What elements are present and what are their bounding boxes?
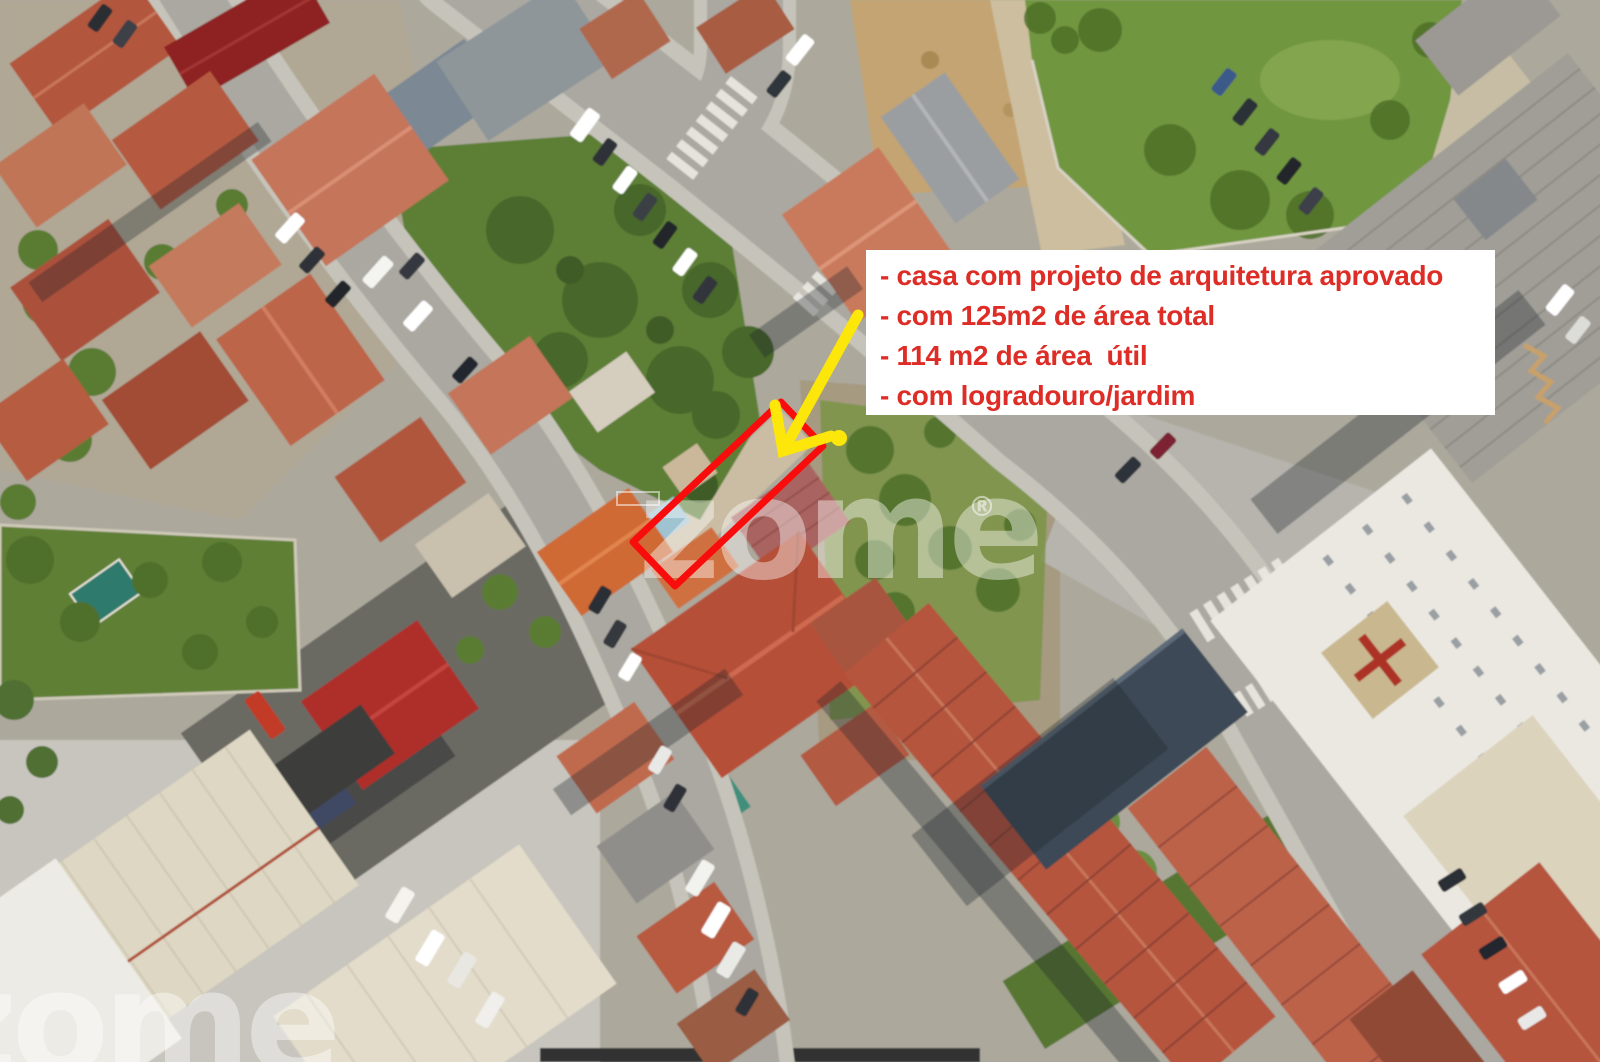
watermark-logo: zome [638, 447, 1038, 612]
watermark-logo-tile: zome [0, 941, 335, 1062]
watermark-registered-icon: ® [968, 490, 996, 523]
annotation-line-1: - casa com projeto de arquitetura aprova… [880, 256, 1495, 296]
annotation-line-3: - 114 m2 de área útil [880, 336, 1495, 376]
annotation-line-4: - com logradouro/jardim [880, 376, 1495, 416]
annotation-line-2: - com 125m2 de área total [880, 296, 1495, 336]
satellite-screenshot: zome ® zome - casa com projeto de arquit… [0, 0, 1600, 1062]
annotation-box: - casa com projeto de arquitetura aprova… [866, 250, 1495, 415]
satellite-map: zome ® zome [0, 0, 1600, 1062]
